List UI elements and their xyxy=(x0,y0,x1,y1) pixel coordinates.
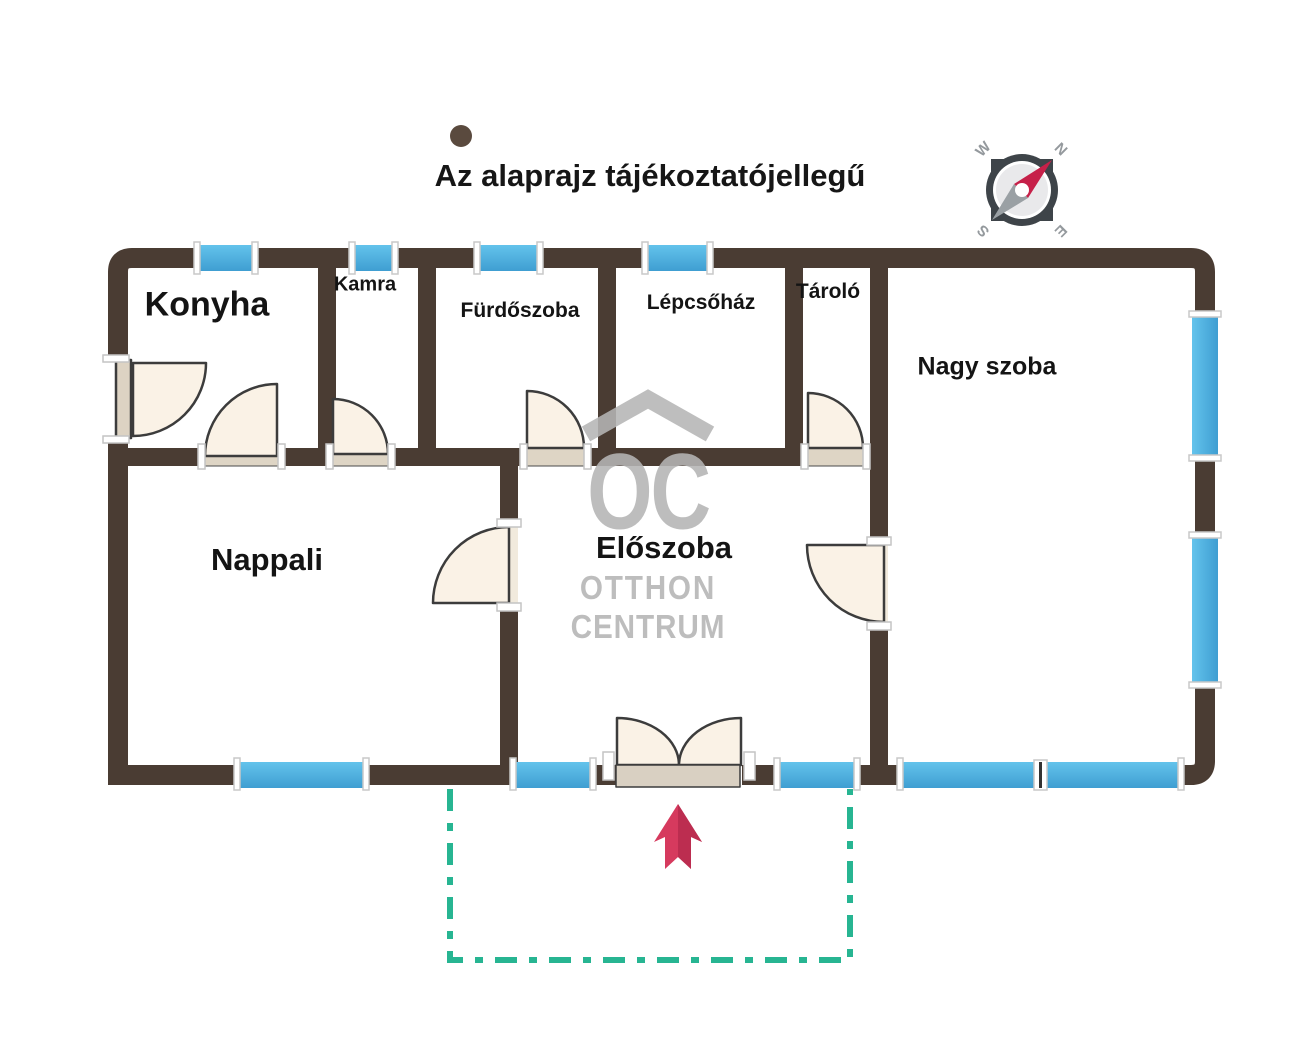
door-tarolo xyxy=(808,393,863,448)
room-label-konyha: Konyha xyxy=(145,286,270,325)
compass-label-s: S xyxy=(974,221,993,240)
compass-icon: W N E S xyxy=(972,138,1070,240)
title-dot xyxy=(450,125,472,147)
room-label-tarolo: Tároló xyxy=(796,280,860,304)
door-entrance-double xyxy=(616,718,741,787)
entrance-arrow xyxy=(654,804,702,869)
room-label-nagy-szoba: Nagy szoba xyxy=(918,353,1057,382)
room-label-nappali: Nappali xyxy=(211,542,323,578)
door-konyha-exterior xyxy=(116,360,206,438)
door-konyha xyxy=(205,384,277,456)
watermark-line2: CENTRUM xyxy=(571,608,726,646)
window-furdoszoba xyxy=(480,245,537,271)
window-kamra xyxy=(355,245,392,271)
compass-label-n: N xyxy=(1051,140,1071,160)
watermark-line1: OTTHON xyxy=(580,569,716,607)
interior-walls xyxy=(108,268,888,765)
room-label-kamra: Kamra xyxy=(334,274,396,297)
compass-label-w: W xyxy=(972,138,995,161)
window-konyha xyxy=(200,245,252,271)
window-nagyszoba-east-upper xyxy=(1192,317,1218,455)
window-nagyszoba-east-lower xyxy=(1192,538,1218,682)
room-label-eloszoba: Előszoba xyxy=(596,530,732,566)
page-title: Az alaprajz tájékoztatójellegű xyxy=(435,158,866,194)
plot-boundary-dashed xyxy=(450,789,850,960)
door-nagyszoba xyxy=(807,545,884,622)
window-eloszoba-right xyxy=(780,762,854,788)
room-label-furdoszoba: Fürdőszoba xyxy=(461,299,580,323)
window-lepcsohaz xyxy=(648,245,707,271)
window-eloszoba-left xyxy=(516,762,590,788)
floorplan-page: W N E S OC OTTHON CENTRUM Az alaprajz tá… xyxy=(0,0,1300,1040)
door-furdoszoba xyxy=(527,391,584,448)
door-nappali xyxy=(433,527,509,603)
window-nappali xyxy=(240,762,363,788)
compass-label-e: E xyxy=(1051,221,1070,240)
room-label-lepcsohaz: Lépcsőház xyxy=(647,291,756,315)
door-thresholds xyxy=(205,448,888,622)
door-kamra xyxy=(333,399,388,454)
